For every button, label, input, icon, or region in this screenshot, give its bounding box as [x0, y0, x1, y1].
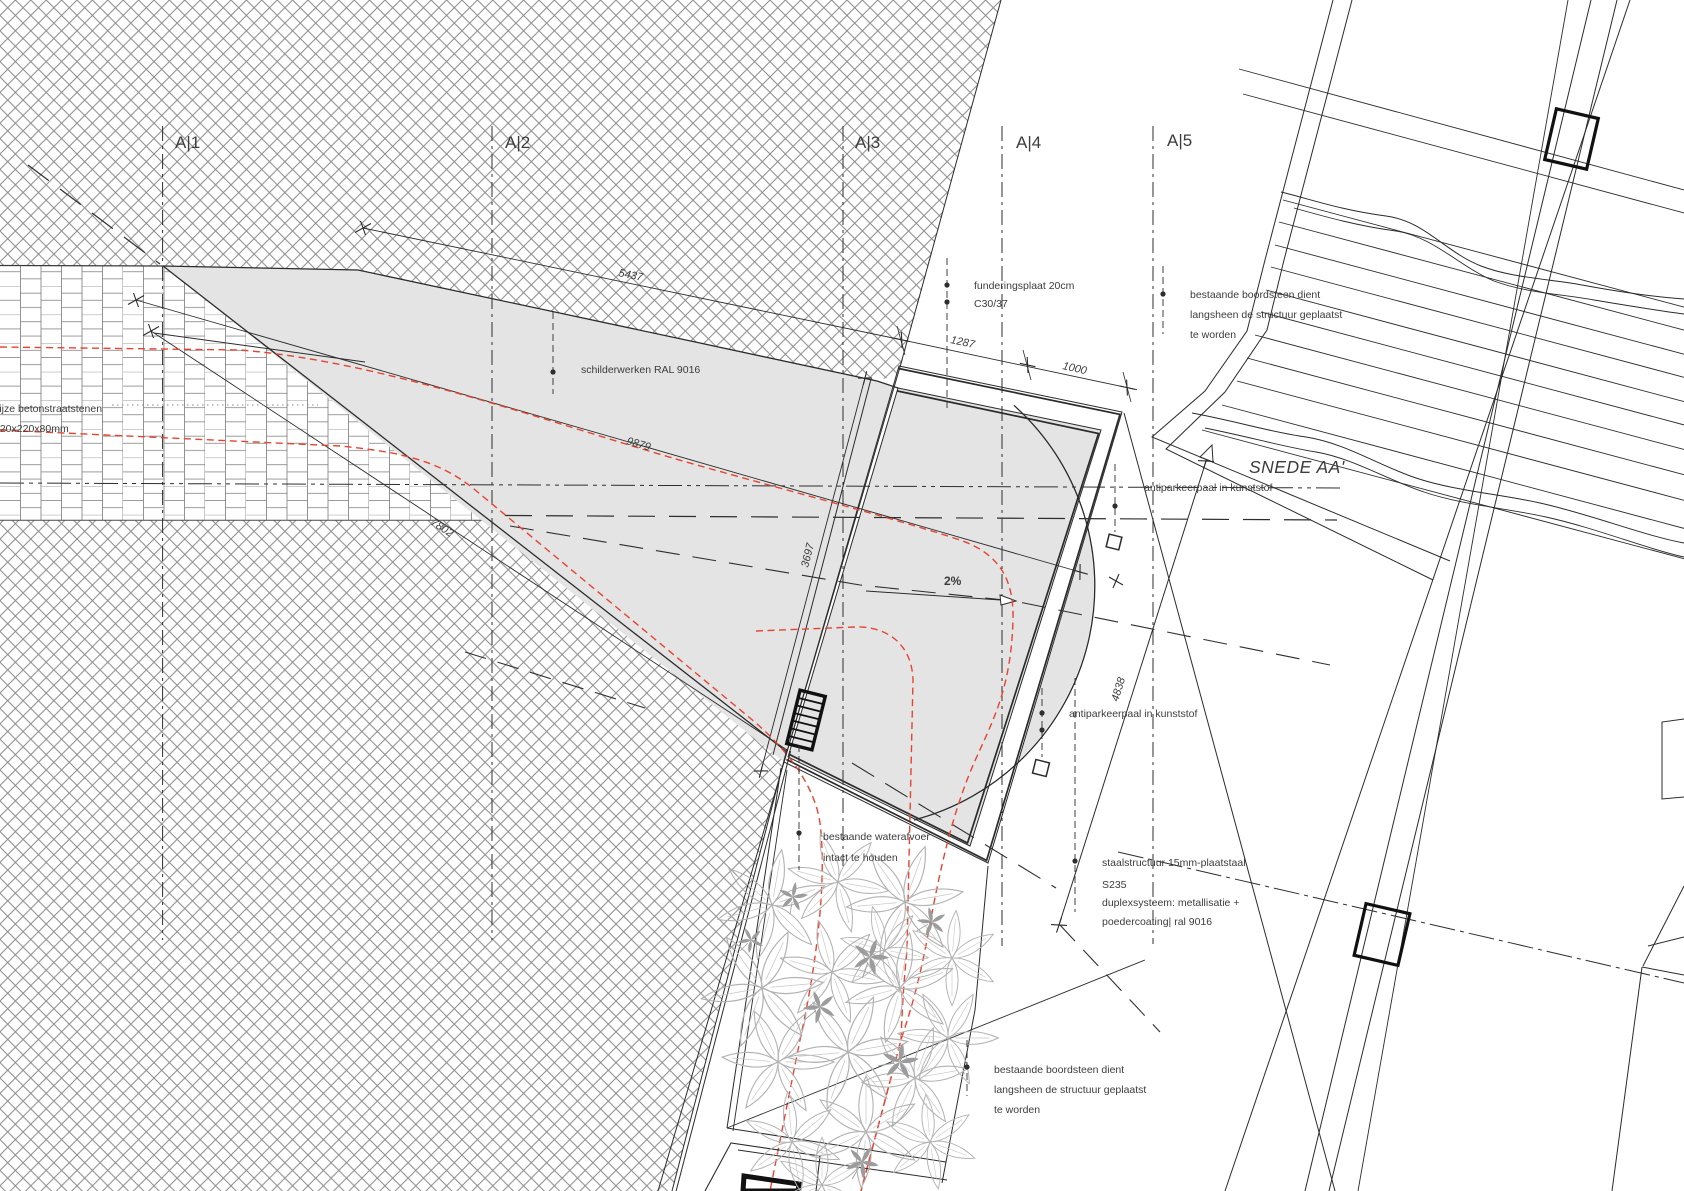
svg-text:C30/37: C30/37: [974, 298, 1008, 310]
svg-text:bestaande boordsteen dient: bestaande boordsteen dient: [1190, 289, 1320, 301]
svg-text:2%: 2%: [944, 574, 962, 588]
svg-text:duplexsysteem: metallisatie +: duplexsysteem: metallisatie +: [1102, 897, 1239, 909]
svg-text:220x220x80mm: 220x220x80mm: [0, 423, 69, 435]
svg-text:SNEDE AA': SNEDE AA': [1249, 457, 1345, 477]
svg-text:A|1: A|1: [175, 133, 200, 152]
svg-text:S235: S235: [1102, 879, 1127, 891]
svg-text:staalstructuur 15mm-plaatstaal: staalstructuur 15mm-plaatstaal: [1102, 857, 1246, 869]
svg-text:bestaande boordsteen dient: bestaande boordsteen dient: [994, 1064, 1124, 1076]
svg-text:te worden: te worden: [994, 1104, 1040, 1116]
svg-text:A|4: A|4: [1016, 133, 1041, 152]
svg-text:langsheen de structuur geplaat: langsheen de structuur geplaatst: [994, 1084, 1146, 1096]
svg-text:bestaande waterafvoer: bestaande waterafvoer: [823, 831, 930, 843]
svg-text:schilderwerken RAL 9016: schilderwerken RAL 9016: [581, 364, 700, 376]
svg-text:te worden: te worden: [1190, 329, 1236, 341]
svg-text:poedercoating| ral 9016: poedercoating| ral 9016: [1102, 916, 1212, 928]
svg-text:intact te houden: intact te houden: [823, 852, 898, 864]
svg-text:A|5: A|5: [1167, 131, 1192, 150]
svg-text:grijze betonstraatstenen: grijze betonstraatstenen: [0, 403, 102, 415]
svg-text:A|2: A|2: [505, 133, 530, 152]
svg-text:funderingsplaat 20cm: funderingsplaat 20cm: [974, 280, 1075, 292]
svg-text:antiparkeerpaal in kunststof: antiparkeerpaal in kunststof: [1144, 482, 1272, 494]
svg-text:antiparkeerpaal in kunststof: antiparkeerpaal in kunststof: [1069, 708, 1197, 720]
svg-text:A|3: A|3: [855, 133, 880, 152]
svg-text:langsheen de structuur geplaat: langsheen de structuur geplaatst: [1190, 309, 1342, 321]
